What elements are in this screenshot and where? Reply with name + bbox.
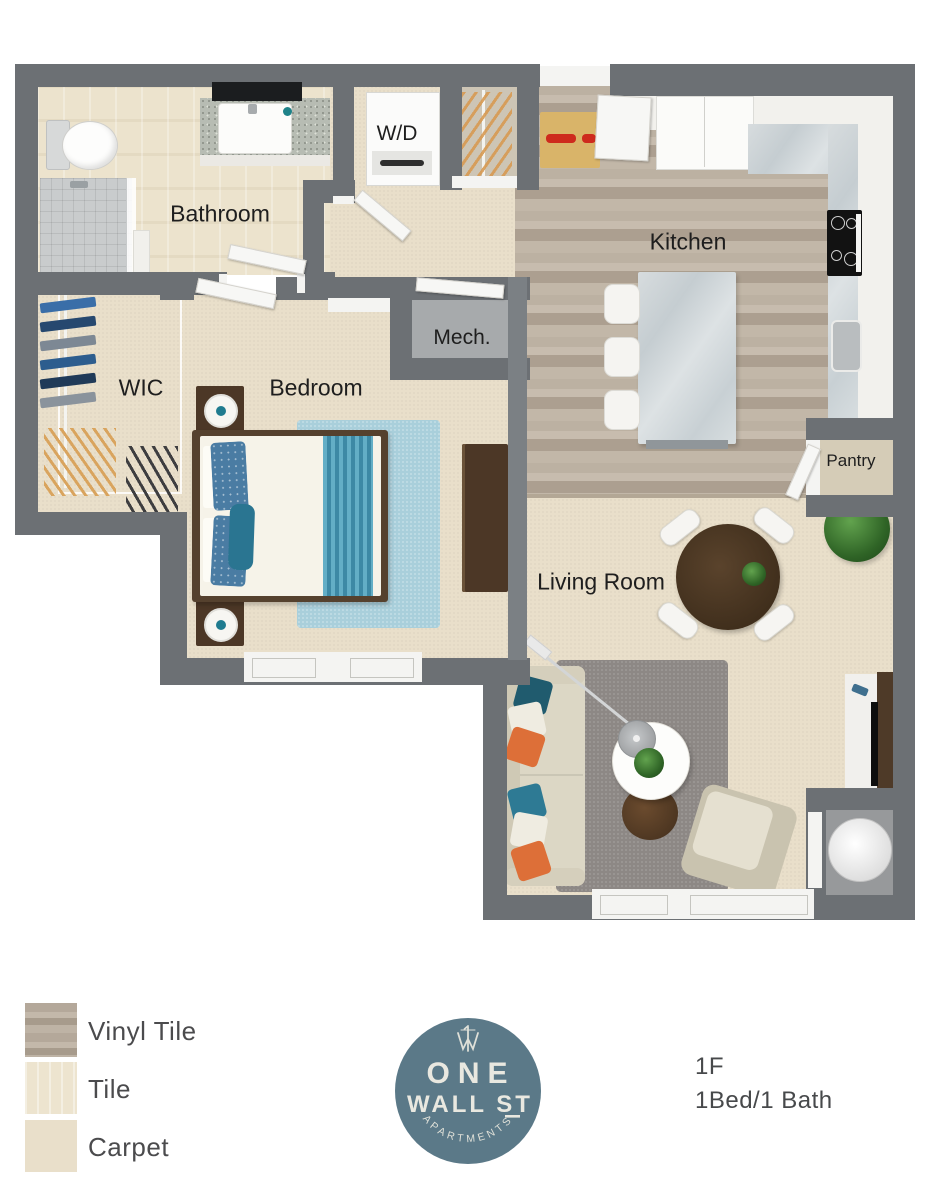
floor-plan: Bathroom W/D Kitchen WIC Bedroom Mech. P… bbox=[0, 0, 935, 960]
bed-runner-throw bbox=[323, 436, 373, 596]
wall-right bbox=[893, 64, 915, 920]
legend-label-carpet: Carpet bbox=[88, 1132, 169, 1163]
refrigerator-door-split bbox=[704, 97, 705, 167]
unit-floor: 1F bbox=[695, 1050, 833, 1084]
wall-bottom-wic bbox=[15, 512, 187, 535]
living-window bbox=[690, 895, 808, 915]
wall-bedroom-top bbox=[160, 277, 194, 300]
closet-sliding-track bbox=[452, 176, 517, 188]
burner bbox=[831, 216, 845, 230]
bedroom-window bbox=[350, 658, 414, 678]
vanity-accessory bbox=[283, 107, 292, 116]
kitchen-island bbox=[638, 272, 736, 444]
wall-end-cap bbox=[333, 196, 354, 204]
armchair-cushion bbox=[691, 789, 775, 872]
kitchen-sink bbox=[831, 320, 862, 372]
wall-closet-right bbox=[517, 64, 539, 190]
wall-left-living bbox=[483, 658, 507, 920]
legend-row-carpet: Carpet bbox=[0, 1120, 300, 1172]
legend-label-vinyl-tile: Vinyl Tile bbox=[88, 1016, 197, 1047]
bed-accent-pillow bbox=[228, 504, 255, 571]
door-mat-stripe bbox=[582, 134, 596, 143]
room-label-wic: WIC bbox=[119, 375, 164, 402]
wall-top-kitchen bbox=[610, 64, 915, 96]
table-lamp-top bbox=[216, 406, 226, 416]
bed-pillow-blue bbox=[210, 441, 249, 511]
vanity-cabinet bbox=[200, 155, 330, 166]
bedroom-window bbox=[252, 658, 316, 678]
carpet-swatch bbox=[25, 1120, 77, 1172]
floor-legend: Vinyl Tile Tile Carpet bbox=[0, 995, 300, 1185]
oven-handle-strip bbox=[856, 214, 861, 272]
entry-door-leaf bbox=[594, 95, 651, 162]
legend-row-tile: Tile bbox=[0, 1062, 300, 1114]
living-window bbox=[600, 895, 668, 915]
room-label-bathroom: Bathroom bbox=[170, 201, 270, 228]
washer-handle bbox=[380, 160, 424, 166]
tv bbox=[871, 702, 878, 786]
vinyl-tile-swatch bbox=[25, 1003, 77, 1057]
logo-line1: ONE bbox=[426, 1057, 515, 1090]
room-label-kitchen: Kitchen bbox=[650, 229, 727, 256]
hallway-bedroom-threshold bbox=[328, 298, 390, 312]
door-mat bbox=[540, 112, 600, 168]
entry-threshold bbox=[540, 66, 610, 86]
wall-end-cap bbox=[297, 274, 305, 293]
table-centerpiece-plant bbox=[742, 562, 766, 586]
burner bbox=[831, 250, 842, 261]
bar-stool bbox=[604, 337, 640, 377]
room-label-washer-dryer: W/D bbox=[377, 122, 418, 146]
wall-bathroom-wd-divider bbox=[333, 85, 354, 203]
upper-cabinets-right bbox=[858, 124, 895, 420]
water-heater bbox=[828, 818, 892, 882]
room-label-bedroom: Bedroom bbox=[269, 375, 362, 402]
bathroom-shelf bbox=[133, 230, 150, 274]
toilet-bowl bbox=[62, 121, 118, 170]
coffee-table-plant bbox=[634, 748, 664, 778]
refrigerator bbox=[656, 96, 754, 170]
room-label-pantry: Pantry bbox=[826, 451, 875, 471]
bar-stool bbox=[604, 284, 640, 324]
bar-stool bbox=[604, 390, 640, 430]
table-lamp bbox=[204, 394, 238, 428]
room-label-mech: Mech. bbox=[433, 326, 490, 350]
wall-wd-right bbox=[440, 64, 462, 190]
utility-door-panel bbox=[808, 812, 822, 888]
shower bbox=[40, 178, 132, 272]
door-mat-stripe bbox=[546, 134, 576, 143]
sofa-cushion-seam bbox=[520, 774, 583, 776]
dresser bbox=[462, 444, 508, 592]
lamp-finial bbox=[633, 735, 640, 742]
unit-type: 1Bed/1 Bath bbox=[695, 1084, 833, 1118]
unit-info: 1F 1Bed/1 Bath bbox=[695, 1050, 833, 1118]
wall-pantry-top bbox=[806, 418, 893, 440]
legend-label-tile: Tile bbox=[88, 1074, 131, 1105]
one-wall-st-logo: ONE WALL ST APARTMENTS bbox=[393, 1016, 543, 1166]
vanity-faucet bbox=[248, 104, 257, 114]
shower-head bbox=[70, 181, 88, 188]
shoe-rack bbox=[44, 428, 116, 496]
table-lamp-top bbox=[216, 620, 226, 630]
wall-left-outer bbox=[15, 64, 38, 535]
island-base bbox=[646, 440, 728, 449]
stored-items bbox=[126, 446, 178, 516]
wall-bedroom-living-divider bbox=[508, 277, 527, 660]
tile-swatch bbox=[25, 1062, 77, 1114]
wall-pantry-bottom bbox=[806, 495, 893, 517]
room-label-living-room: Living Room bbox=[537, 569, 665, 596]
logo-line2: WALL ST bbox=[407, 1091, 533, 1118]
wall-left-bedroom bbox=[160, 512, 187, 685]
legend-row-vinyl-tile: Vinyl Tile bbox=[0, 1003, 300, 1057]
wall-bedroom-top bbox=[276, 277, 392, 300]
vanity-mirror bbox=[212, 82, 302, 101]
table-lamp bbox=[204, 608, 238, 642]
